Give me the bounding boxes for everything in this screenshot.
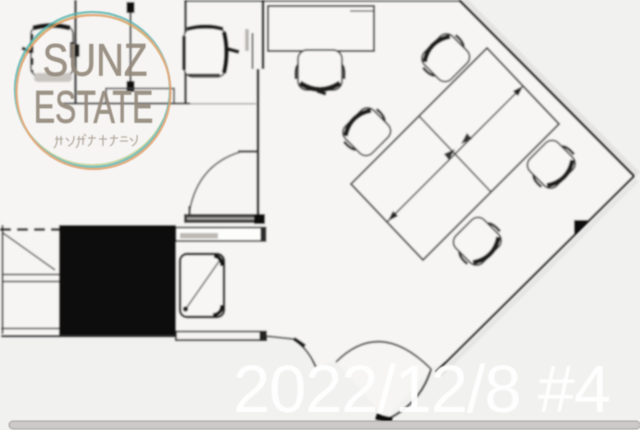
svg-text:SUNZ: SUNZ [43,35,148,86]
svg-text:2022/12/8 #4: 2022/12/8 #4 [233,352,610,427]
svg-text:ESTATE: ESTATE [34,83,154,133]
